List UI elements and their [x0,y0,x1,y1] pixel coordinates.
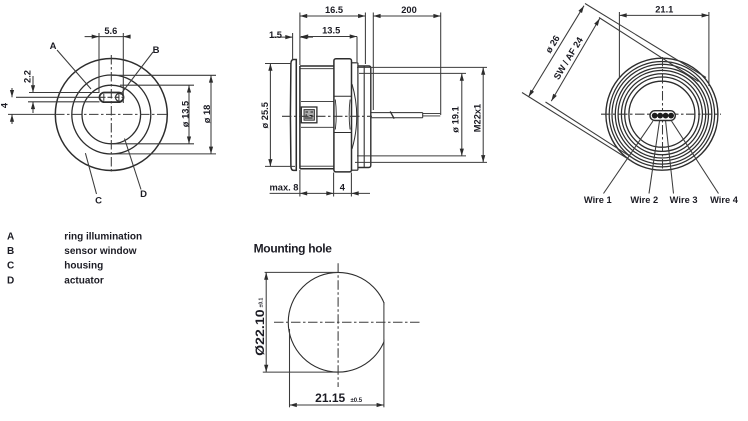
svg-text:ø 13.5: ø 13.5 [181,101,191,127]
svg-text:5.6: 5.6 [104,26,117,36]
svg-text:4: 4 [340,183,346,193]
svg-text:B: B [153,45,160,56]
svg-text:D: D [7,275,14,286]
svg-text:ø 19.1: ø 19.1 [450,106,460,132]
svg-text:4: 4 [0,102,10,108]
svg-text:Ø22.10: Ø22.10 [253,309,267,356]
svg-text:ø 18: ø 18 [202,105,212,124]
svg-text:A: A [50,41,57,52]
svg-text:B: B [7,246,14,257]
svg-text:Wire 3: Wire 3 [670,195,698,205]
svg-text:C: C [7,260,14,271]
svg-text:C: C [95,196,102,207]
svg-text:actuator: actuator [64,275,104,286]
svg-text:A: A [7,231,14,242]
svg-text:21.1: 21.1 [655,5,673,15]
svg-text:ø 26: ø 26 [544,34,562,55]
svg-text:16.5: 16.5 [325,5,343,15]
svg-text:2.2: 2.2 [22,70,32,83]
svg-text:Wire 4: Wire 4 [710,195,739,205]
svg-text:Wire 2: Wire 2 [630,195,658,205]
svg-text:200: 200 [401,5,417,15]
svg-text:max. 8: max. 8 [270,183,299,193]
svg-text:sensor window: sensor window [64,246,136,257]
svg-text:±0.1: ±0.1 [259,297,265,307]
svg-text:housing: housing [64,260,103,271]
svg-text:±0.5: ±0.5 [351,398,363,404]
svg-text:ø 25.5: ø 25.5 [260,102,270,128]
svg-text:21.15: 21.15 [315,391,345,405]
svg-text:13.5: 13.5 [322,26,340,36]
svg-text:1.5: 1.5 [269,30,282,40]
svg-text:D: D [140,189,147,200]
svg-text:M22x1: M22x1 [473,104,483,132]
svg-text:ring illumination: ring illumination [64,231,142,242]
svg-text:Mounting hole: Mounting hole [254,242,333,256]
svg-text:Wire 1: Wire 1 [584,195,612,205]
